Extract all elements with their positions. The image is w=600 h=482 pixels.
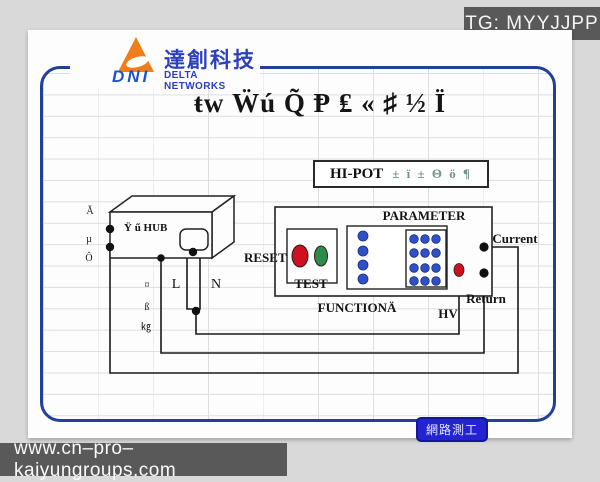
ln-junction-dot [192,307,200,315]
watermark-url: www.cn–pro–kaiyungroups.com [14,438,287,482]
hub-bottom-dot [157,254,165,262]
return-label: Return [466,291,506,306]
blue-dot [421,235,430,244]
hub-left-dot-1 [106,225,114,233]
function-label: FUNCTIONÄ [318,300,397,315]
wiring-diagram: RESET TEST PARAMETER FUNCTIONÄ HV Curren… [0,0,600,480]
return-terminal[interactable] [479,268,488,277]
line-l-label: L [172,277,181,292]
blue-dot [358,246,368,256]
blue-dot [432,277,441,286]
garbled-char: µ [86,234,92,245]
blue-dot [432,235,441,244]
hub-label: Ÿ ű HUB [124,221,168,234]
hub-left-dot-2 [106,243,114,251]
garbled-char: ß [145,302,150,313]
reset-button[interactable] [292,245,308,267]
blue-dot [421,249,430,258]
current-terminal[interactable] [479,242,488,251]
garbled-char: Ă [86,205,94,217]
blue-dot [410,235,419,244]
current-label: Current [492,231,538,246]
blue-dot [358,231,368,241]
watermark-url-bar: www.cn–pro–kaiyungroups.com [0,443,287,476]
left-garbled-column: Ă µ Ô [85,205,94,264]
garbled-char: ¤ [145,280,150,291]
screenshot-root: { "header": { "tag": "TG: MYYJJPP" }, "l… [0,0,600,480]
reset-label: RESET [244,250,287,265]
garbled-char: ㎏ [141,321,151,333]
hub-port-dot [189,248,197,256]
blue-dot [410,249,419,258]
line-n-label: N [211,277,221,292]
blue-dot [432,249,441,258]
test-button[interactable] [315,246,328,266]
test-label: TEST [294,276,328,291]
blue-dot [358,260,368,270]
mid-garbled-column: ¤ ß ㎏ [141,280,151,333]
parameter-label: PARAMETER [383,208,466,223]
blue-dot [421,264,430,273]
blue-dot [410,277,419,286]
blue-dot [358,274,368,284]
garbled-char: Ô [85,252,92,264]
blue-dot [410,264,419,273]
hv-label: HV [438,306,458,321]
blue-dot [432,264,441,273]
blue-dot [421,277,430,286]
hub-port [180,229,208,250]
hv-terminal[interactable] [454,264,464,277]
wire-ln-loop [187,252,200,309]
